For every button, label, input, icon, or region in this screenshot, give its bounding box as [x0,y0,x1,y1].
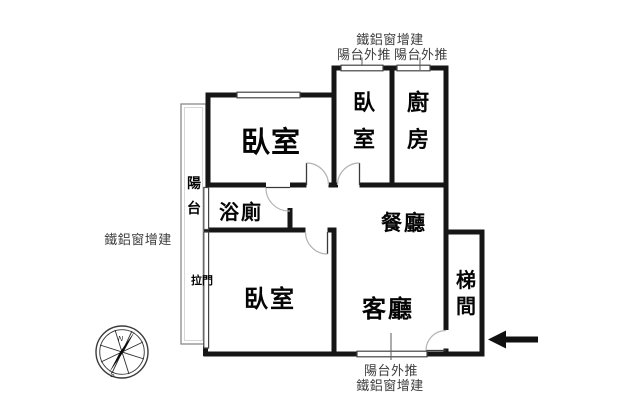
window-kitchen [397,65,430,71]
sliding-door-panel [204,232,209,348]
compass-south-label: S [110,372,115,379]
sliding-door-label: 拉門 [190,273,214,290]
entrance-arrow [488,331,538,349]
compass-rose: N S [96,326,148,379]
kitchen-label: 廚房 [405,84,431,158]
bottom-window-addition-note: 鐵鋁窗增建 [330,375,450,394]
floorplan-drawing: N S [0,0,640,419]
living-room-label: 客廳 [338,289,438,324]
left-window-addition-note: 鐵鋁窗增建 [78,229,198,248]
dining-room-label: 餐廳 [354,207,454,237]
floorplan-image: N S 臥室 臥室 廚房 浴廁 餐廳 臥室 客廳 梯間 陽台 拉門 鐵鋁窗增建 … [0,0,640,419]
balcony-label: 陽台 [181,171,207,221]
compass-north-label: N [118,336,124,343]
window-living-room [357,351,427,357]
top-balcony-push-right-note: 陽台外推 [381,44,461,63]
master-bedroom-label: 臥室 [231,119,311,161]
upper-bedroom-label: 臥室 [351,84,377,158]
window-upper-bedroom [341,65,383,71]
stairwell-label: 梯間 [453,268,479,320]
window-master-bedroom [237,92,300,98]
lower-bedroom-label: 臥室 [220,279,320,314]
